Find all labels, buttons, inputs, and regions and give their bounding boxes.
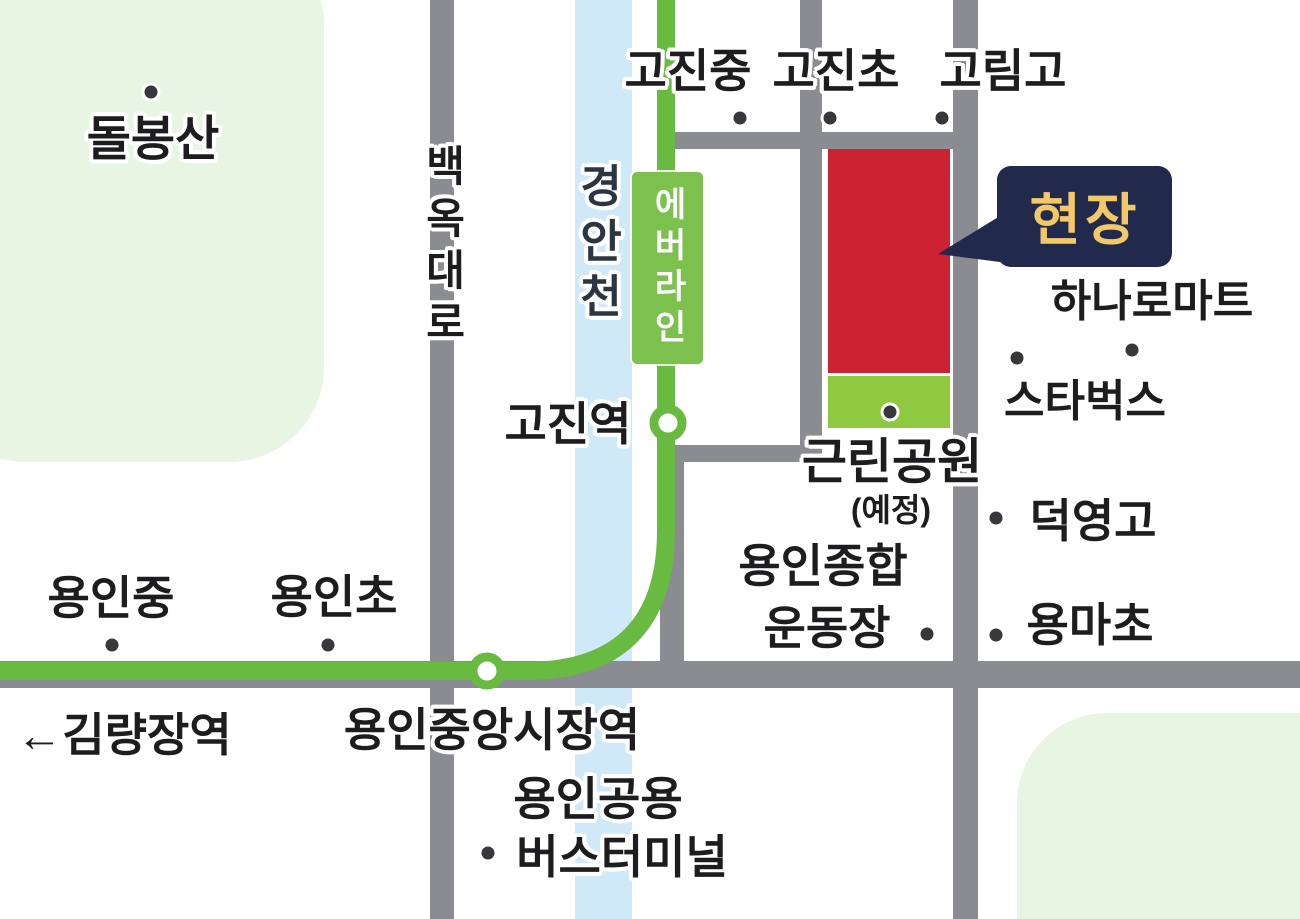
poi-dot-yongin-middle <box>106 639 119 652</box>
label-school-deokyeong-high: 덕영고 <box>1030 497 1157 545</box>
label-starbucks: 스타벅스 <box>1004 379 1166 425</box>
label-mountain-dolbongsan: 돌봉산 <box>87 115 219 165</box>
site-callout-label: 현장 <box>1029 176 1140 257</box>
poi-dot-park <box>884 406 897 419</box>
poi-dot-stadium <box>921 628 934 641</box>
poi-dot-starbucks <box>1011 352 1024 365</box>
label-station-yongin-market: 용인중앙시장역 <box>344 706 640 754</box>
poi-dot-dolbongsan <box>145 86 158 99</box>
park-area-bottomright <box>1017 713 1300 919</box>
label-park-planned-note: (예정) <box>851 494 931 528</box>
label-station-gojin: 고진역 <box>505 400 632 448</box>
poi-dot-gojin-elementary <box>824 112 837 125</box>
label-station-gimnyangjang: ←김량장역 <box>16 711 231 759</box>
label-bus-terminal-line1: 용인공용 <box>513 775 682 823</box>
label-hanaro-mart: 하나로마트 <box>1051 279 1253 325</box>
site-red-box <box>828 149 950 373</box>
poi-dot-yongin-elementary <box>322 639 335 652</box>
poi-dot-deokyeong-high <box>990 512 1003 525</box>
label-school-gorim-high: 고림고 <box>940 47 1067 95</box>
poi-dot-hanaro-mart <box>1126 344 1139 357</box>
label-school-gojin-elementary: 고진초 <box>773 47 900 95</box>
road-baegokdaero <box>430 0 454 919</box>
poi-dot-yongma-elementary <box>990 629 1003 642</box>
label-school-yongma-elementary: 용마초 <box>1027 601 1154 649</box>
poi-dot-gojin-middle <box>734 112 747 125</box>
label-stadium-line2: 운동장 <box>764 604 891 652</box>
everline-badge: 에버라인 <box>632 172 703 364</box>
park-green-box <box>828 376 950 428</box>
label-road-baegokdaero: 백옥대로 <box>420 144 464 352</box>
map-canvas: 에버라인 현장 돌봉산 백옥대로 경안천 고진중 고진초 고림고 하나로마트 스… <box>0 0 1300 919</box>
poi-dot-bus-terminal <box>482 847 495 860</box>
poi-dot-gorim-high <box>936 112 949 125</box>
everline-badge-label: 에버라인 <box>643 186 692 350</box>
label-stadium-line1: 용인종합 <box>738 542 907 590</box>
label-school-yongin-middle: 용인중 <box>48 574 175 622</box>
road-horizontal-top <box>666 132 978 149</box>
label-neighborhood-park: 근린공원 <box>802 437 982 488</box>
station-circle-gojin <box>654 409 682 437</box>
station-circle-market <box>473 657 501 685</box>
label-bus-terminal-line2: 버스터미널 <box>516 833 728 881</box>
label-school-gojin-middle: 고진중 <box>625 47 752 95</box>
park-area-topleft <box>0 0 324 462</box>
label-stream-gyeongancheon: 경안천 <box>573 163 620 328</box>
label-school-yongin-elementary: 용인초 <box>271 573 398 621</box>
road-horizontal-stub <box>666 445 822 462</box>
